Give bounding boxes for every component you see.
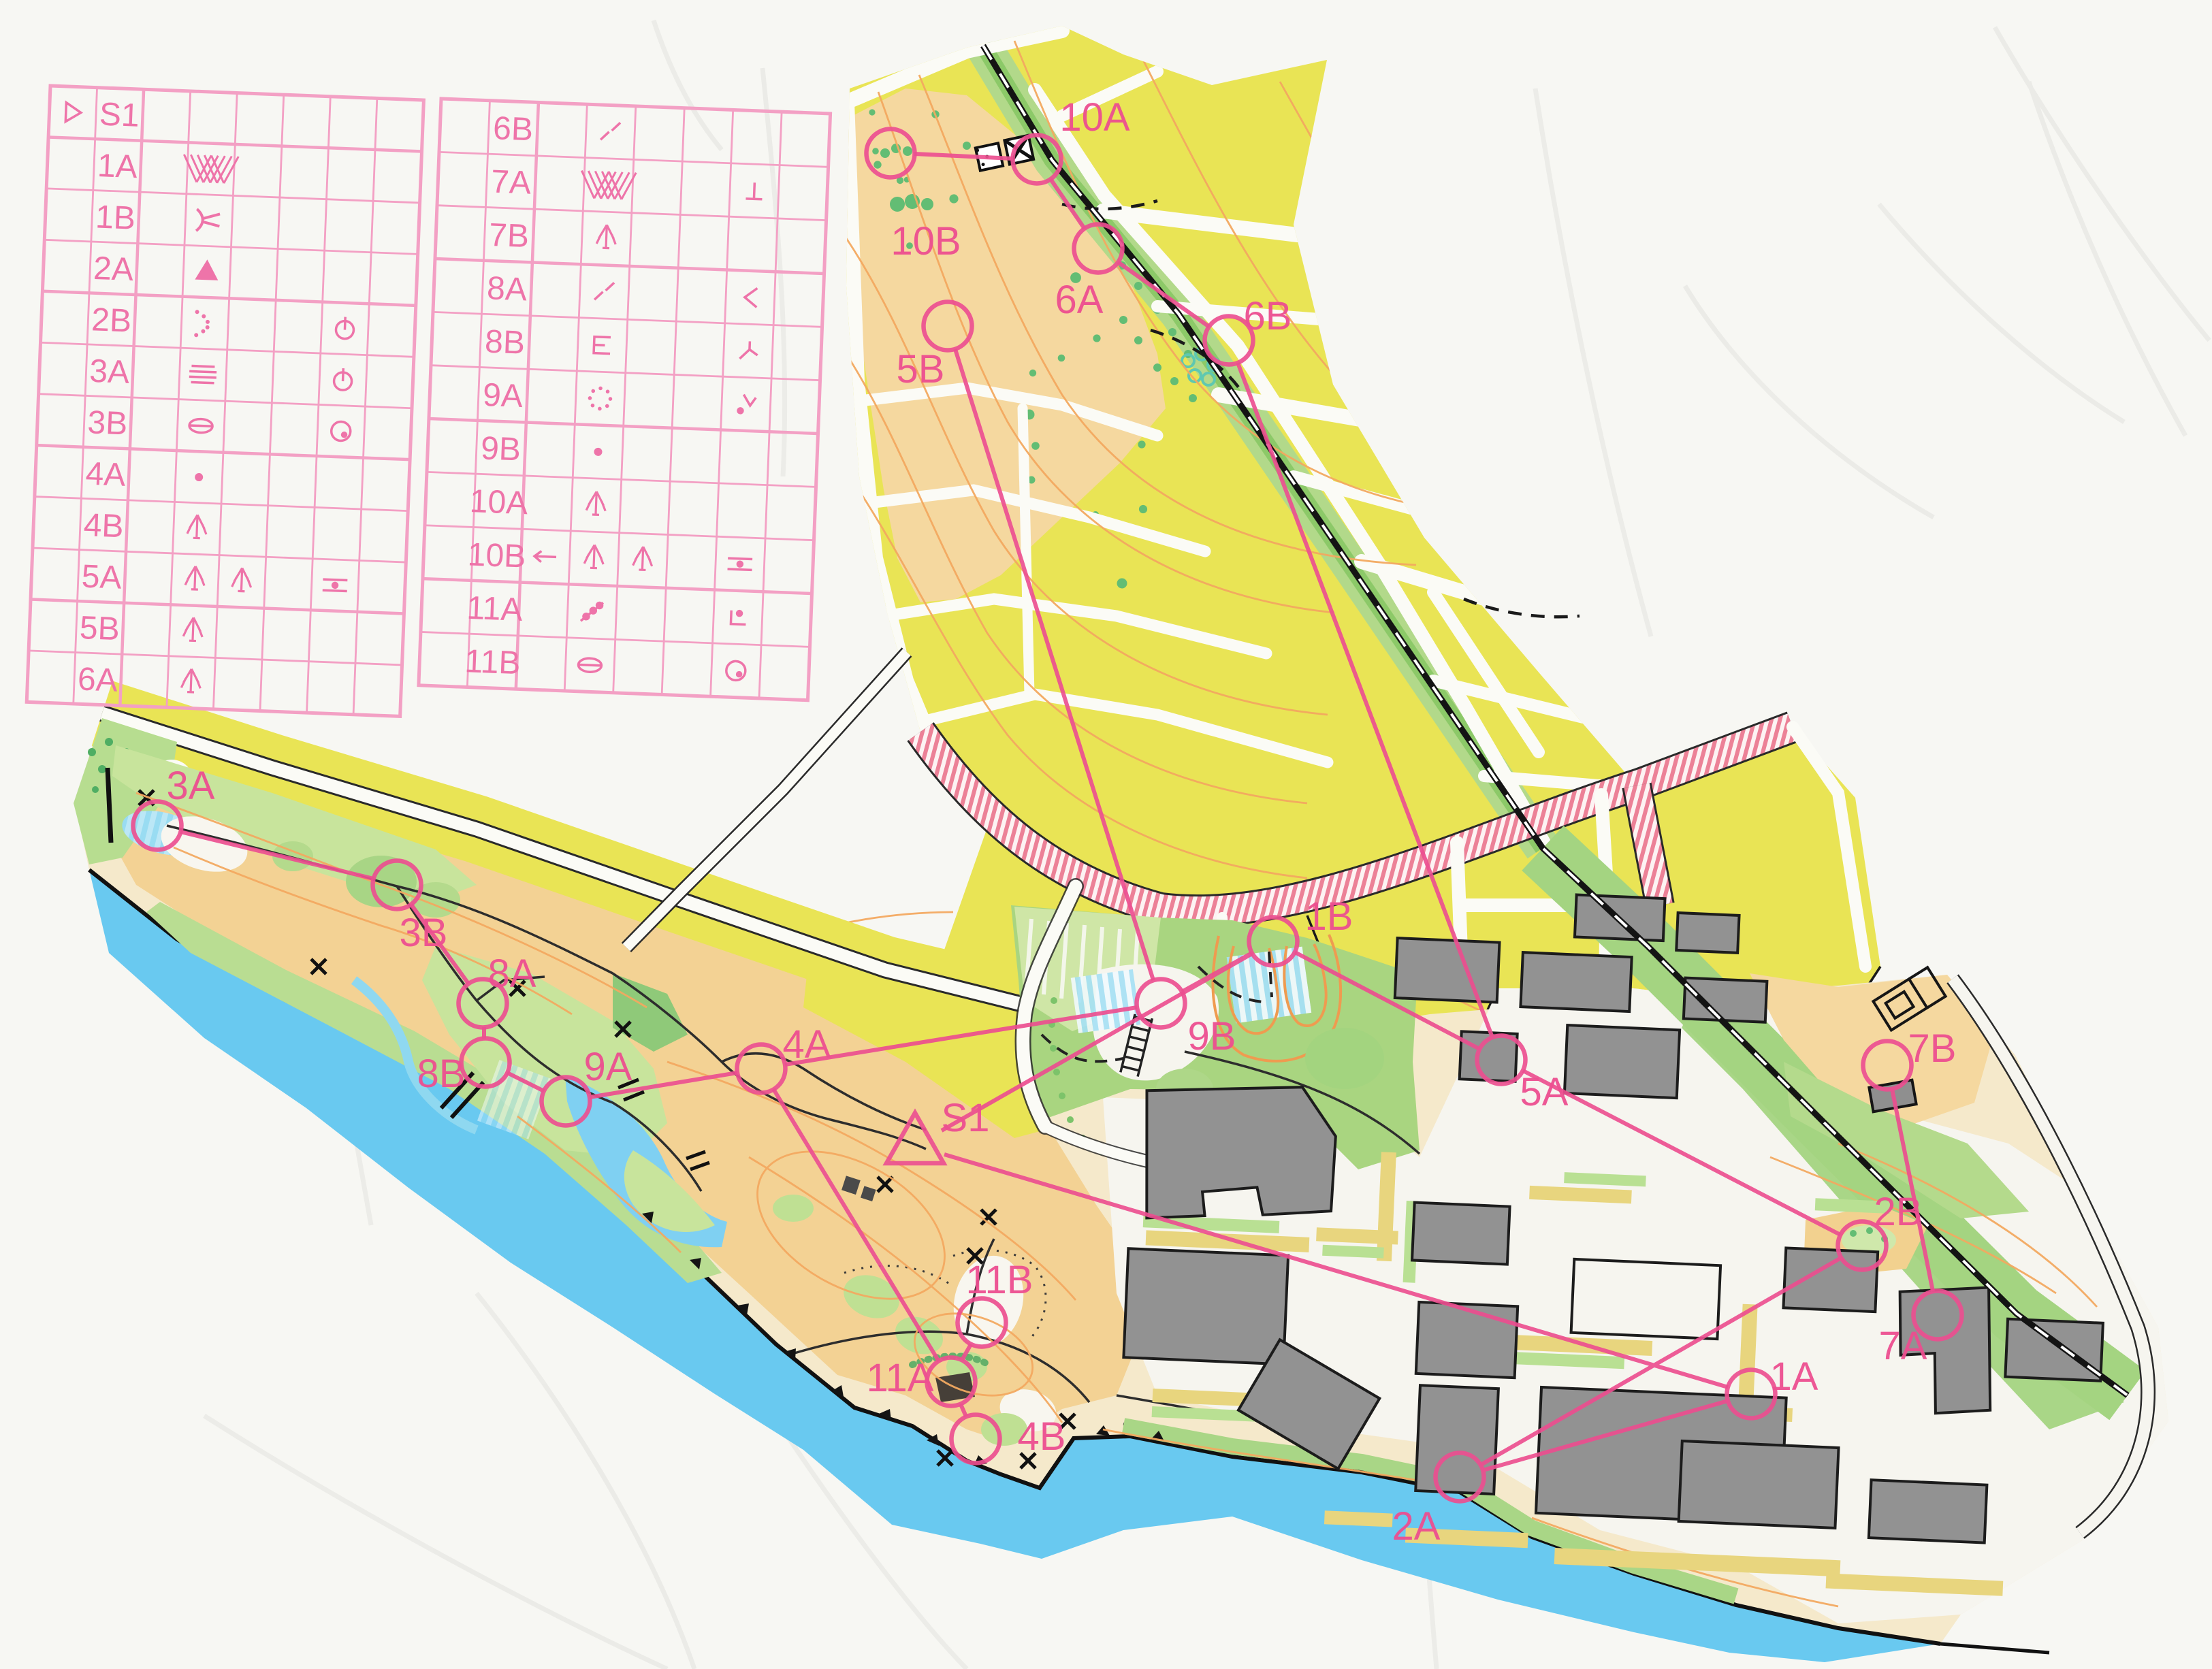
svg-text:3B: 3B [87,404,129,442]
svg-text:10B: 10B [891,219,961,263]
svg-text:2A: 2A [1392,1504,1441,1549]
svg-text:S1: S1 [99,97,140,134]
svg-text:11B: 11B [966,1258,1033,1302]
svg-text:7A: 7A [490,164,532,201]
svg-text:2A: 2A [93,250,134,288]
svg-text:10B: 10B [467,536,526,574]
svg-text:6A: 6A [1055,278,1104,322]
svg-text:1A: 1A [1770,1355,1818,1399]
svg-text:9B: 9B [1188,1014,1236,1058]
svg-text:8A: 8A [486,270,528,308]
svg-text:5A: 5A [1520,1070,1569,1114]
svg-text:10A: 10A [469,483,528,521]
svg-text:6A: 6A [77,661,118,698]
svg-text:1B: 1B [95,199,136,236]
svg-text:4A: 4A [85,456,127,493]
svg-text:2B: 2B [91,302,132,339]
svg-text:9B: 9B [480,430,522,468]
svg-text:3A: 3A [167,764,215,808]
svg-text:9A: 9A [482,377,524,415]
svg-text:5B: 5B [897,347,945,391]
svg-text:10A: 10A [1059,95,1130,140]
svg-text:8B: 8B [417,1052,466,1096]
svg-text:5B: 5B [79,610,121,647]
svg-text:7A: 7A [1879,1324,1927,1368]
svg-text:6B: 6B [492,110,534,148]
svg-text:7B: 7B [488,217,530,255]
svg-text:5A: 5A [81,559,123,596]
svg-text:1A: 1A [97,148,138,185]
svg-text:1B: 1B [1305,894,1353,939]
svg-text:9A: 9A [584,1045,632,1089]
svg-text:4B: 4B [1018,1414,1066,1459]
svg-text:11B: 11B [464,643,522,681]
svg-text:6B: 6B [1244,294,1292,338]
svg-text:11A: 11A [867,1356,934,1400]
svg-text:4A: 4A [783,1022,831,1067]
svg-text:3A: 3A [89,353,130,391]
svg-text:2B: 2B [1874,1190,1923,1234]
svg-text:4B: 4B [83,507,125,545]
svg-text:11A: 11A [466,590,524,628]
svg-text:3B: 3B [400,911,448,955]
svg-text:S1: S1 [942,1096,990,1140]
svg-text:8A: 8A [488,952,536,996]
svg-text:7B: 7B [1908,1026,1957,1071]
svg-text:8B: 8B [484,324,526,361]
